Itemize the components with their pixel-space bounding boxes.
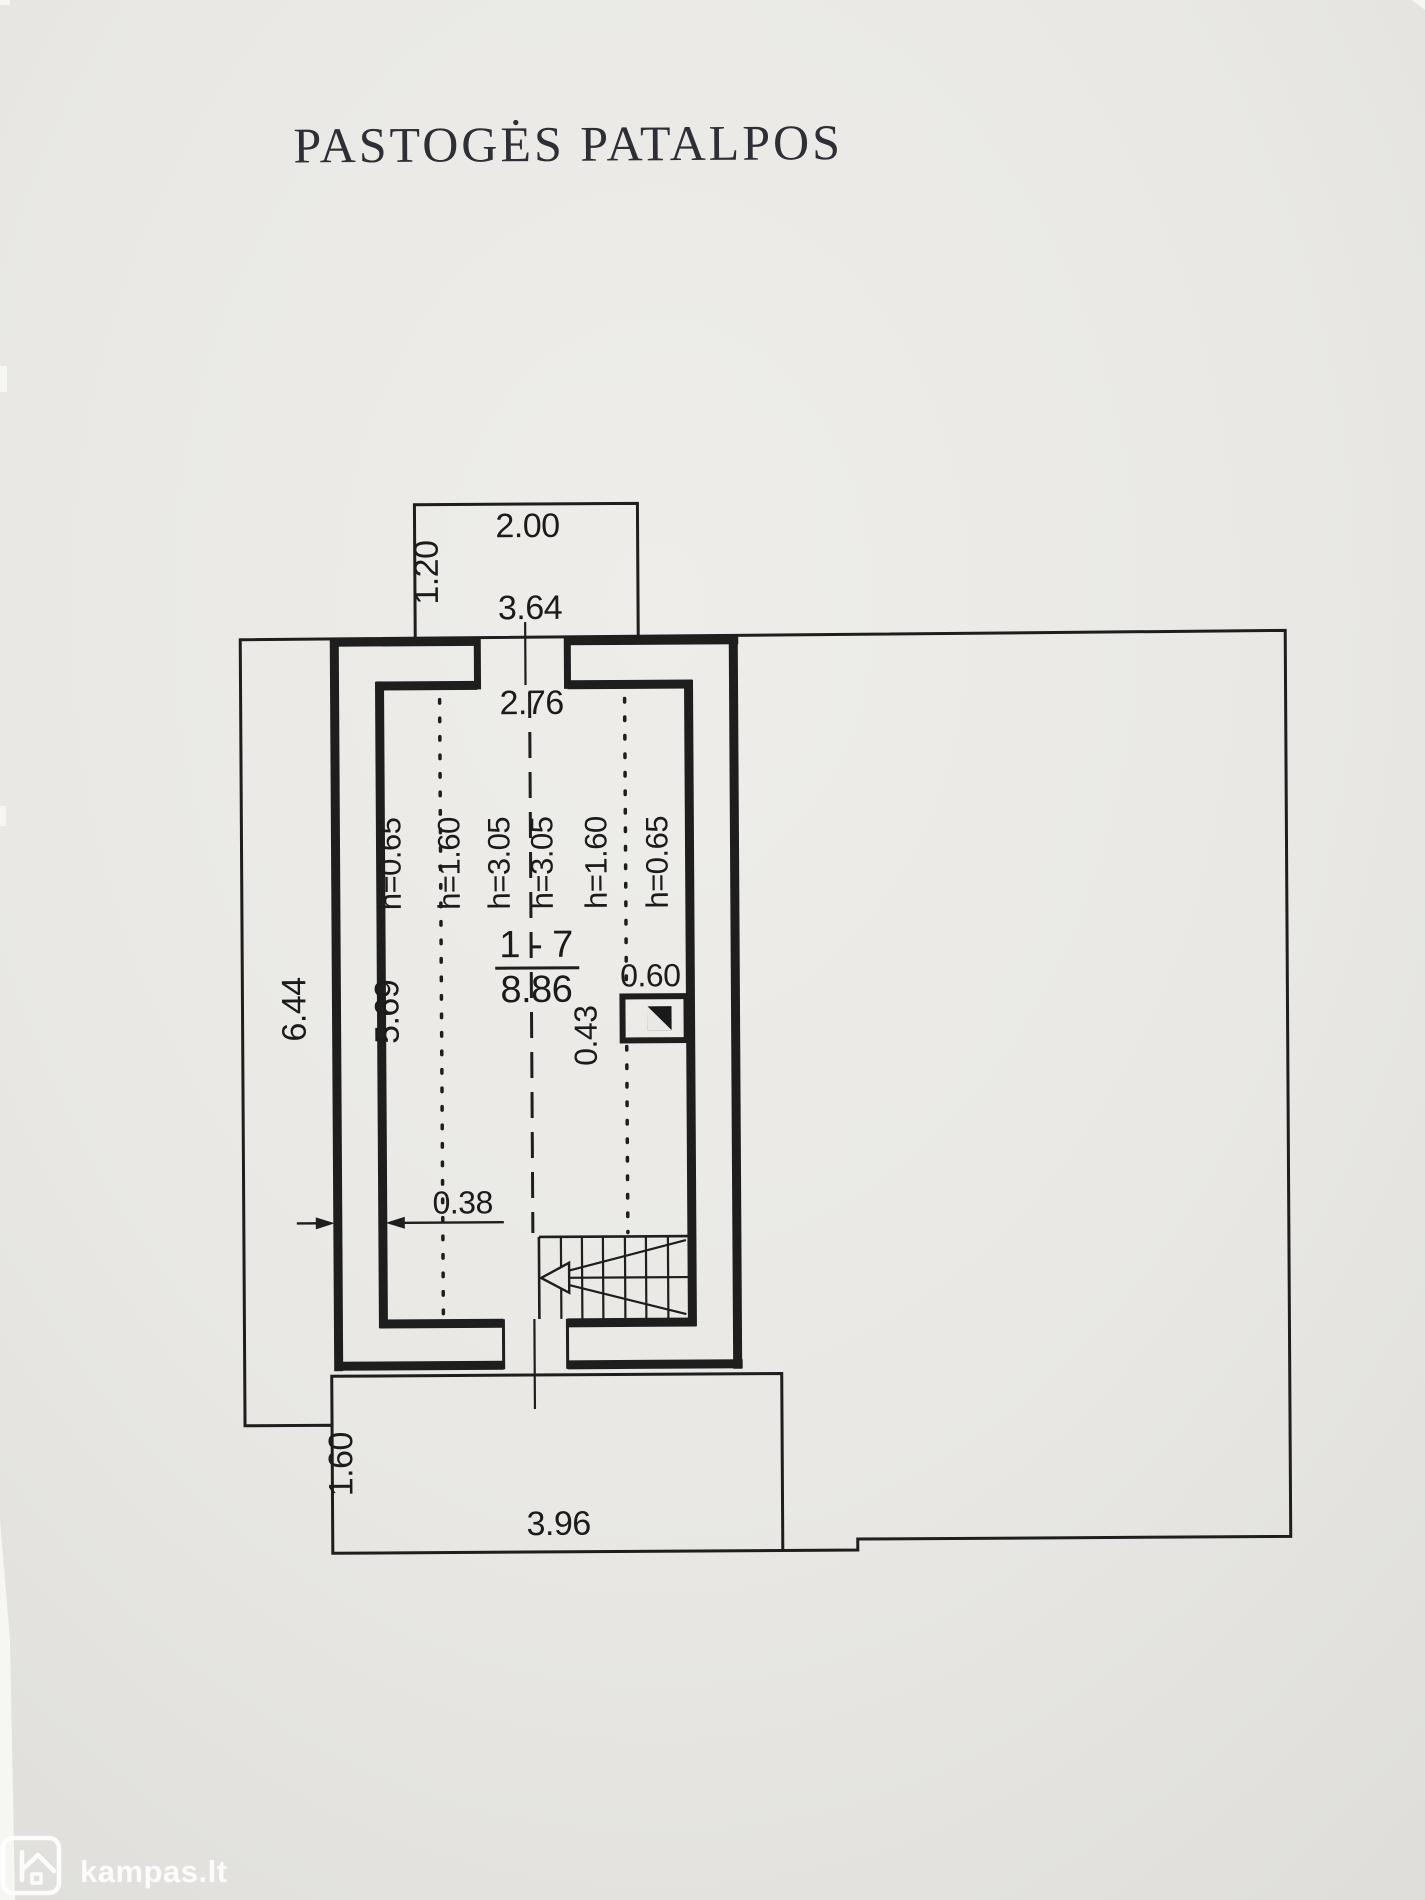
watermark-brand-text: kampas.lt: [80, 1854, 228, 1889]
room-area-label: 8.86: [500, 969, 572, 1011]
chimney-width-label: 0.60: [620, 957, 681, 993]
page-title: PASTOGĖS PATALPOS: [293, 114, 843, 173]
room-outer-width-label: 3.64: [498, 589, 562, 627]
height-mark-3: h=3.05: [481, 817, 517, 910]
dimension-extension-line-bottom: [534, 1319, 535, 1409]
height-mark-6: h=0.65: [639, 816, 675, 909]
floor-plan-drawing: PASTOGĖS PATALPOS: [0, 0, 1425, 1900]
dormer-depth-label: 1.20: [408, 540, 446, 604]
paper-background: [0, 0, 1425, 1900]
porch-depth-label: 1.60: [322, 1432, 360, 1496]
dormer-width-label: 2.00: [495, 507, 559, 545]
room-outer-length-label: 6.44: [275, 977, 313, 1041]
height-mark-4: h=3.05: [524, 817, 560, 910]
wall-thickness-label: 0.38: [432, 1184, 493, 1220]
porch-width-label: 3.96: [526, 1505, 590, 1543]
height-mark-5: h=1.60: [578, 816, 614, 909]
height-mark-2: h=1.60: [431, 817, 467, 910]
room-label: 1 - 7 8.86: [495, 924, 580, 1012]
chimney-depth-label: 0.43: [567, 1005, 603, 1066]
room-number-label: 1 - 7: [499, 924, 573, 966]
room-inner-width-label: 2.76: [499, 684, 563, 722]
scanned-floor-plan-page: PASTOGĖS PATALPOS: [0, 0, 1425, 1900]
room-inner-length-label: 5.69: [368, 980, 406, 1044]
height-mark-1: h=0.65: [372, 817, 408, 910]
